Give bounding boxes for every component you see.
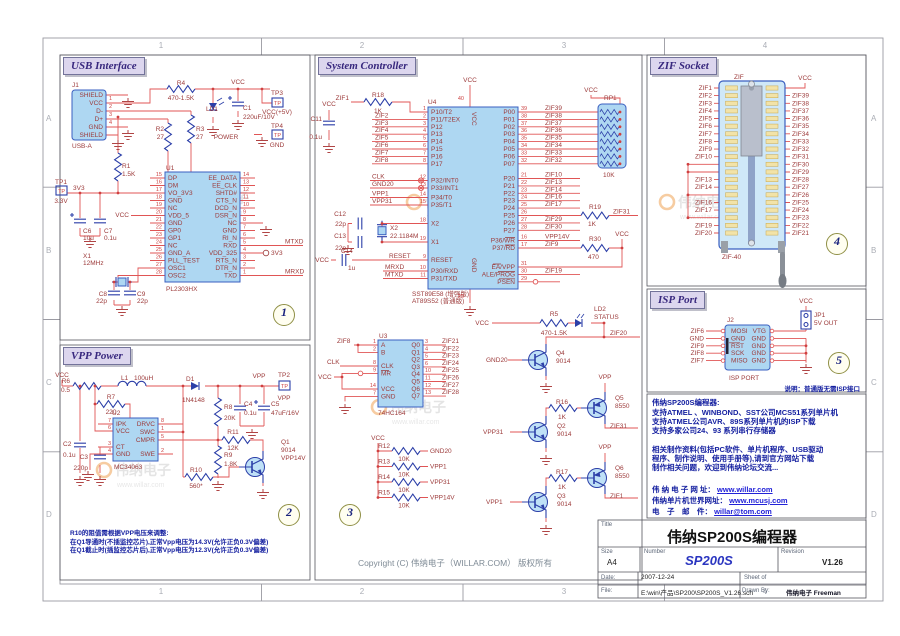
schematic-label: Q2 xyxy=(557,423,566,430)
schematic-label: 2 xyxy=(109,104,112,110)
schematic-label: GND xyxy=(223,228,238,235)
schematic-label: 1 xyxy=(109,96,112,102)
schematic-label: ZIF22 xyxy=(792,222,809,229)
ruler-row-b: B xyxy=(46,246,51,255)
schematic-label: C4 xyxy=(244,401,253,408)
schematic-label: ZIF29 xyxy=(545,216,562,223)
schematic-label: 35 xyxy=(521,136,527,142)
ruler-row-c2: C xyxy=(871,378,877,387)
schematic-label: 10 xyxy=(420,265,426,271)
schematic-label: 21 xyxy=(521,173,527,179)
schematic-label: P36/WR xyxy=(491,238,516,245)
schematic-label: R2 xyxy=(156,126,165,133)
schematic-label: ZIF14 xyxy=(545,186,562,193)
schematic-label: CLK xyxy=(381,363,394,370)
contact-website: 伟 纳 电 子 网 址： www.willar.com xyxy=(652,484,773,495)
schematic-label: ZIF37 xyxy=(792,108,809,115)
schematic-label: P25 xyxy=(503,213,515,220)
schematic-label: EE_DATA xyxy=(208,175,237,182)
schematic-label: C13 xyxy=(334,233,346,240)
schematic-label: 29 xyxy=(521,276,527,282)
schematic-label: 34 xyxy=(521,143,527,149)
schematic-label: NC xyxy=(168,243,178,250)
schematic-label: 13 xyxy=(420,182,426,188)
schematic-label: CLK xyxy=(327,359,340,366)
schematic-label: 3.3V xyxy=(54,198,68,205)
schematic-label: 0.1u xyxy=(63,452,76,459)
schematic-label: VCC xyxy=(475,320,489,327)
schematic-label: R16 xyxy=(556,399,568,406)
schematic-label: ZIF9 xyxy=(699,146,713,153)
schematic-label: ZIF xyxy=(734,74,744,81)
schematic-label: ZIF16 xyxy=(695,200,712,207)
contact-label: 电 子 邮 件： xyxy=(652,507,712,516)
schematic-label: 20K xyxy=(224,415,236,422)
schematic-label: 8 xyxy=(243,217,246,223)
schematic-label: 12 xyxy=(420,175,426,181)
schematic-label: 5 xyxy=(423,136,426,142)
schematic-label: GP1 xyxy=(168,235,181,242)
schematic-label: 470-1.5K xyxy=(168,95,195,102)
schematic-label: ZIF4 xyxy=(375,127,389,134)
schematic-label: NC xyxy=(228,220,238,227)
schematic-label: OSC2 xyxy=(168,273,186,280)
schematic-label: 2 xyxy=(161,448,164,454)
transistor-q1 xyxy=(239,451,265,483)
watermark-url: www.willar.com xyxy=(391,419,440,426)
schematic-label: 18 xyxy=(156,195,162,201)
schematic-label: RST xyxy=(731,343,744,350)
section-header-system-controller: System Controller xyxy=(318,57,416,75)
schematic-label: 28 xyxy=(156,270,162,276)
schematic-label: 24 xyxy=(521,195,527,201)
schematic-label: ZIF35 xyxy=(545,135,562,142)
isp-note: 说明：普通版无需ISP接口 xyxy=(700,383,860,393)
schematic-label: SHTD# xyxy=(216,190,238,197)
schematic-label: 22p xyxy=(96,298,107,305)
schematic-label: 560* xyxy=(189,483,203,490)
watermark-url: www.willar.com xyxy=(116,482,165,489)
schematic-label: CT xyxy=(116,444,125,451)
schematic-label: 18 xyxy=(420,218,426,224)
schematic-label: ZIF25 xyxy=(792,200,809,207)
schematic-label: GND xyxy=(752,358,767,365)
schematic-label: 12 xyxy=(425,383,431,389)
schematic-label: SHIELD xyxy=(80,132,104,139)
schematic-label: P35/T1 xyxy=(431,202,452,209)
diode-d1 xyxy=(191,382,199,390)
transistor-q2 xyxy=(522,416,548,448)
info-line: 支持多家公司24、93 系列串行存储器 xyxy=(652,425,776,436)
schematic-label: 8 xyxy=(161,418,164,424)
vpp-note-3: 在Q1截止时(插监控芯片后),正常Vpp电压为12.3V(允许正负0.3V偏差) xyxy=(70,544,268,554)
schematic-label: ZIF36 xyxy=(545,127,562,134)
schematic-label: ZIF14 xyxy=(695,184,712,191)
schematic-label: 11 xyxy=(243,195,249,201)
schematic-label: P12 xyxy=(431,124,443,131)
schematic-label: C14 xyxy=(341,248,353,255)
schematic-label: 7 xyxy=(243,225,246,231)
schematic-label: X1 xyxy=(83,253,91,260)
schematic-label: TP2 xyxy=(278,372,290,379)
schematic-label: 1 xyxy=(373,339,376,345)
schematic-label: 0.1u xyxy=(244,410,257,417)
section-header-usb: USB Interface xyxy=(63,57,145,75)
schematic-label: 1 xyxy=(243,270,246,276)
schematic-label: TP3 xyxy=(271,90,283,97)
schematic-label: GND xyxy=(470,258,477,273)
schematic-label: ZIF31 xyxy=(613,209,630,216)
schematic-label: ZIF27 xyxy=(442,382,459,389)
schematic-label: 25 xyxy=(521,202,527,208)
schematic-label: P06 xyxy=(503,153,515,160)
resistor-pack-rp1 xyxy=(598,104,626,168)
schematic-label: 17 xyxy=(521,242,527,248)
schematic-label: SCK xyxy=(731,350,745,357)
schematic-label: 3V3 xyxy=(73,185,85,192)
schematic-label: P37/RD xyxy=(492,245,515,252)
schematic-label: R13 xyxy=(378,459,390,466)
schematic-label: VPP14V xyxy=(430,495,455,502)
schematic-label: ZIF6 xyxy=(691,328,705,335)
schematic-label: 14 xyxy=(243,172,249,178)
schematic-label: ZIF35 xyxy=(792,123,809,130)
schematic-label: ZIF7 xyxy=(691,358,705,365)
ruler-row-d: D xyxy=(46,510,52,519)
schematic-label: 47uF/16V xyxy=(271,410,300,417)
schematic-label: VCC xyxy=(584,87,598,94)
schematic-label: 9 xyxy=(243,210,246,216)
ruler-col-4: 4 xyxy=(759,41,771,50)
schematic-label: U3 xyxy=(379,333,388,340)
schematic-label: ISP PORT xyxy=(729,375,759,382)
schematic-label: GND xyxy=(116,451,131,458)
mcusj-link[interactable]: www.mcusj.com xyxy=(729,496,788,505)
schematic-label: TP xyxy=(58,189,65,195)
schematic-label: ZIF30 xyxy=(545,223,562,230)
contact-mcu-site: 伟纳单片机世界网址： www.mcusj.com xyxy=(652,495,788,506)
schematic-label: R1 xyxy=(122,163,131,170)
schematic-label: ZIF24 xyxy=(792,207,809,214)
schematic-label: SHIELD xyxy=(80,92,104,99)
schematic-label: GP0 xyxy=(168,228,181,235)
badge-2: 2 xyxy=(278,504,300,526)
schematic-label: P17 xyxy=(431,161,443,168)
schematic-label: P27 xyxy=(503,227,515,234)
schematic-label: 16 xyxy=(156,180,162,186)
schematic-label: R9 xyxy=(224,452,233,459)
schematic-label: D+ xyxy=(95,116,104,123)
schematic-label: VPP xyxy=(277,395,290,402)
schematic-label: ZIF26 xyxy=(442,375,459,382)
schematic-label: 3 xyxy=(109,112,112,118)
schematic-label: 15 xyxy=(420,199,426,205)
schematic-label: Q3 xyxy=(557,493,566,500)
ruler-col-1: 1 xyxy=(155,41,167,50)
schematic-label: TP1 xyxy=(55,179,67,186)
ruler-row-b2: B xyxy=(871,246,876,255)
schematic-label: C3 xyxy=(80,454,89,461)
schematic-label: ZIF10 xyxy=(695,154,712,161)
schematic-label: D- xyxy=(96,108,103,115)
schematic-label: ZIF38 xyxy=(792,100,809,107)
schematic-label: ZIF5 xyxy=(375,135,389,142)
schematic-label: 11 xyxy=(425,376,431,382)
schematic-label: R6 xyxy=(62,378,71,385)
schematic-label: 22 xyxy=(156,225,162,231)
schematic-label: ZIF5 xyxy=(699,116,713,123)
schematic-label: ZIF8 xyxy=(337,338,351,345)
schematic-label: POWER xyxy=(214,134,239,141)
schematic-label: ZIF9 xyxy=(691,343,705,350)
schematic-label: 1 xyxy=(161,426,164,432)
schematic-label: R10 xyxy=(190,467,202,474)
schematic-label: VPP31 xyxy=(483,429,504,436)
schematic-label: 0.5 xyxy=(61,387,70,394)
schematic-label: 14 xyxy=(370,383,376,389)
schematic-label: P04 xyxy=(503,139,515,146)
schematic-label: TP xyxy=(281,384,288,390)
schematic-label: ZIF13 xyxy=(695,177,712,184)
schematic-label: ZIF29 xyxy=(792,169,809,176)
schematic-label: 74HC164 xyxy=(378,410,406,417)
revision-label: Revision xyxy=(781,549,804,555)
schematic-label: 8 xyxy=(373,360,376,366)
schematic-label: 19 xyxy=(156,202,162,208)
contact-label: 伟纳单片机世界网址： xyxy=(652,496,727,505)
schematic-label: EE_CLK xyxy=(212,183,238,190)
schematic-label: RP1 xyxy=(604,95,617,102)
schematic-label: P14 xyxy=(431,139,443,146)
schematic-label: 1.5K xyxy=(122,171,136,178)
schematic-label: Q7 xyxy=(411,393,420,400)
schematic-label: ZIF28 xyxy=(792,177,809,184)
schematic-sheet: 伟纳电子www.willar.com伟纳电子www.willar.com伟纳电子… xyxy=(0,0,900,636)
schematic-label: 13 xyxy=(425,390,431,396)
schematic-label: 30 xyxy=(521,268,527,274)
schematic-label: 39 xyxy=(521,106,527,112)
schematic-label: 16 xyxy=(521,235,527,241)
schematic-label: 1N4148 xyxy=(182,397,205,404)
schematic-label: ZIF13 xyxy=(545,179,562,186)
schematic-label: R8 xyxy=(224,404,233,411)
schematic-label: 23 xyxy=(156,232,162,238)
schematic-label: SWE xyxy=(140,451,155,458)
number-value: SP200S xyxy=(640,553,778,568)
schematic-label: D1 xyxy=(186,376,195,383)
schematic-label: MRXD xyxy=(385,264,404,271)
schematic-label: ZIF8 xyxy=(699,138,713,145)
schematic-label: 27 xyxy=(196,134,204,141)
schematic-label: DCD_N xyxy=(215,205,238,212)
schematic-label: GND xyxy=(270,142,285,149)
schematic-label: ZIF8 xyxy=(691,350,705,357)
badge-5: 5 xyxy=(828,352,850,374)
schematic-label: ZIF17 xyxy=(695,207,712,214)
schematic-label: ZIF3 xyxy=(375,120,389,127)
schematic-label: RESET xyxy=(431,257,453,264)
schematic-label: 23 xyxy=(521,187,527,193)
schematic-label: STATUS xyxy=(594,314,619,321)
schematic-label: C6 xyxy=(83,228,92,235)
schematic-label: P11/T2EX xyxy=(431,116,461,123)
schematic-label: U1 xyxy=(166,165,175,172)
schematic-label: GND20 xyxy=(430,448,452,455)
schematic-label: ZIF28 xyxy=(442,389,459,396)
willar-link[interactable]: www.willar.com xyxy=(717,485,773,494)
schematic-label: 7 xyxy=(373,390,376,396)
schematic-label: 3 xyxy=(108,441,111,447)
schematic-label: VCC xyxy=(470,112,477,126)
schematic-label: LD2 xyxy=(594,306,606,313)
drawnby-label: Drawn By: xyxy=(742,588,770,594)
schematic-label: VPP1 xyxy=(486,499,503,506)
ruler-col-1b: 1 xyxy=(155,587,167,596)
schematic-label: ZIF7 xyxy=(699,131,713,138)
schematic-label: VCC xyxy=(115,212,129,219)
schematic-label: GND xyxy=(731,335,746,342)
schematic-label: R15 xyxy=(378,490,390,497)
badge-1: 1 xyxy=(273,304,295,326)
schematic-label: 25 xyxy=(156,247,162,253)
schematic-label: ZIF31 xyxy=(792,154,809,161)
schematic-label: VTG xyxy=(753,328,766,335)
schematic-label: ALE/PROG xyxy=(482,271,515,278)
schematic-label: Q5 xyxy=(615,395,624,402)
schematic-label: R19 xyxy=(589,204,601,211)
schematic-label: 22 xyxy=(521,180,527,186)
schematic-label: ZIF2 xyxy=(375,112,389,119)
schematic-label: PSEN xyxy=(497,279,515,286)
schematic-label: ZIF16 xyxy=(545,194,562,201)
schematic-label: ZIF20 xyxy=(695,230,712,237)
schematic-label: ZIF22 xyxy=(442,345,459,352)
file-label: File: xyxy=(601,588,612,594)
schematic-label: VCC xyxy=(231,79,245,86)
schematic-label: 26 xyxy=(521,210,527,216)
schematic-label: ZIF-40 xyxy=(722,254,742,261)
schematic-label: VPP14V xyxy=(281,455,306,462)
schematic-label: TP4 xyxy=(271,123,283,130)
schematic-label: GND xyxy=(168,198,183,205)
copyright-text: Copyright (C) 伟纳电子（WILLAR.COM） 版权所有 xyxy=(330,557,580,569)
contact-email: 电 子 邮 件： willar@tom.com xyxy=(652,506,772,517)
schematic-label: AT89S52 (普通版) xyxy=(412,296,464,305)
schematic-label: 6 xyxy=(423,143,426,149)
schematic-label: ZIF27 xyxy=(792,184,809,191)
schematic-label: R30 xyxy=(589,236,601,243)
schematic-label: GND xyxy=(690,335,705,342)
schematic-label: GND xyxy=(89,124,104,131)
schematic-label: 22p xyxy=(335,221,346,228)
email-link[interactable]: willar@tom.com xyxy=(714,507,772,516)
section-header-vpp-power: VPP Power xyxy=(63,347,131,365)
schematic-label: 32 xyxy=(521,158,527,164)
schematic-label: ZIF10 xyxy=(545,172,562,179)
schematic-label: P03 xyxy=(503,131,515,138)
schematic-label: 1K xyxy=(558,414,567,421)
j2-key-mark xyxy=(726,338,729,354)
schematic-label: 4 xyxy=(243,247,246,253)
schematic-label: 4 xyxy=(109,120,112,126)
schematic-label: 14 xyxy=(420,192,426,198)
schematic-label: 3 xyxy=(425,339,428,345)
schematic-label: RESET xyxy=(389,253,411,260)
schematic-label: ZIF32 xyxy=(792,146,809,153)
ruler-row-a: A xyxy=(46,114,51,123)
schematic-label: U2 xyxy=(112,410,121,417)
schematic-label: L1 xyxy=(121,375,129,382)
schematic-label: VCC xyxy=(322,101,336,108)
schematic-label: VPP1 xyxy=(372,191,389,198)
schematic-label: OSC1 xyxy=(168,265,186,272)
ruler-row-d2: D xyxy=(871,510,877,519)
schematic-label: ZIF34 xyxy=(545,142,562,149)
schematic-label: 26 xyxy=(156,255,162,261)
schematic-label: MOSI xyxy=(731,328,748,335)
schematic-label: 7 xyxy=(108,418,111,424)
transistor-q3 xyxy=(522,486,548,518)
ruler-col-3b: 3 xyxy=(558,587,570,596)
schematic-label: ZIF26 xyxy=(792,192,809,199)
schematic-label: P07 xyxy=(503,161,515,168)
schematic-label: ZIF6 xyxy=(375,142,389,149)
schematic-label: VCC xyxy=(315,257,329,264)
schematic-label: P24 xyxy=(503,205,515,212)
schematic-label: 24 xyxy=(156,240,162,246)
schematic-label: 9014 xyxy=(557,431,572,438)
ruler-col-3: 3 xyxy=(558,41,570,50)
schematic-label: CLK xyxy=(372,174,385,181)
schematic-label: ZIF21 xyxy=(442,338,459,345)
schematic-label: U4 xyxy=(428,99,437,106)
date-label: Date: xyxy=(601,575,615,581)
schematic-label: Q6 xyxy=(411,386,420,393)
schematic-label: VPP xyxy=(598,444,611,451)
schematic-label: R11 xyxy=(227,429,239,436)
schematic-label: 33 xyxy=(521,150,527,156)
schematic-label: P10/T2 xyxy=(431,109,452,116)
schematic-label: DRVC xyxy=(137,421,156,428)
schematic-label: C9 xyxy=(137,291,146,298)
schematic-label: 17 xyxy=(156,187,162,193)
schematic-label: RI_N xyxy=(222,235,237,242)
schematic-label: PL2303HX xyxy=(166,286,198,293)
schematic-label: JP1 xyxy=(814,312,826,319)
schematic-label: VPP xyxy=(598,374,611,381)
transistor-q5 xyxy=(581,392,607,424)
schematic-label: C8 xyxy=(99,291,108,298)
transistor-q4 xyxy=(522,344,548,376)
schematic-label: B xyxy=(381,349,385,356)
schematic-label: 12MHz xyxy=(83,260,104,267)
schematic-label: C2 xyxy=(63,441,72,448)
schematic-label: 4 xyxy=(423,128,426,134)
schematic-label: ZIF21 xyxy=(792,230,809,237)
sheet-label: Sheet of xyxy=(744,575,766,581)
schematic-label: CMPR xyxy=(136,437,155,444)
schematic-label: ZIF2 xyxy=(699,93,713,100)
schematic-label: ZIF20 xyxy=(610,330,627,337)
schematic-label: 10 xyxy=(425,368,431,374)
schematic-label: DM xyxy=(168,183,178,190)
schematic-label: 6 xyxy=(108,425,111,431)
schematic-label: P32/INT0 xyxy=(431,178,459,185)
schematic-label: J2 xyxy=(727,317,734,324)
schematic-label: MISO xyxy=(731,358,748,365)
schematic-label: 0.1u xyxy=(309,134,322,141)
schematic-label: 100uH xyxy=(134,375,153,382)
